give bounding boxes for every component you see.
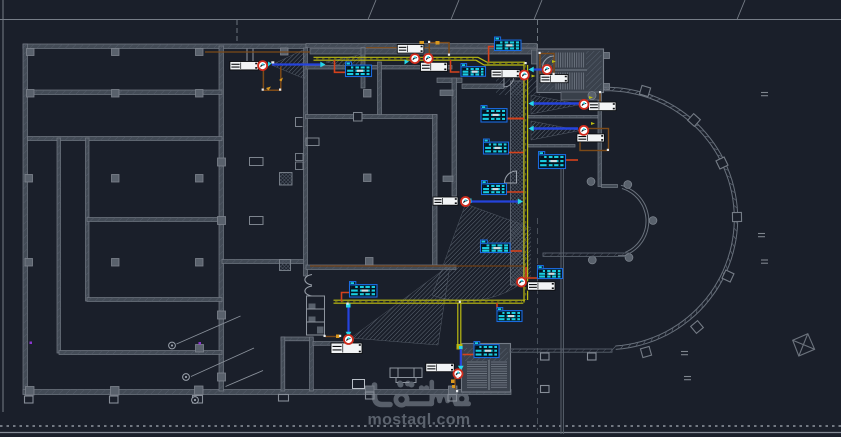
svg-text:mostaql.com: mostaql.com — [367, 412, 470, 429]
